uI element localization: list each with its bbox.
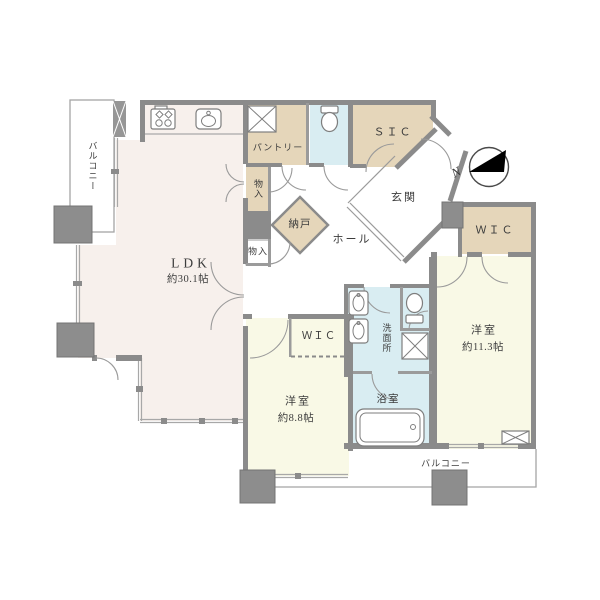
second-toilet-icon	[406, 294, 423, 324]
label-bathroom: 浴室	[377, 395, 400, 406]
gas-stove-icon	[151, 106, 175, 129]
label-wic-right: ＷＩＣ	[476, 226, 515, 237]
label-sic: ＳＩＣ	[374, 128, 413, 139]
label-nando: 納戸	[289, 220, 312, 231]
label-ldk-area: 約30.1帖	[167, 275, 209, 286]
label-bedroom-right: 洋室	[471, 326, 497, 337]
label-wic-left: ＷＩＣ	[302, 332, 337, 343]
label-genkan: 玄関	[391, 193, 417, 204]
washbasin-icon	[349, 291, 368, 315]
floorplan-canvas: バルコニー LDK 約30.1帖 パントリー 物入 納戸 物入 ホール 玄関 Ｓ…	[0, 0, 600, 600]
vent-icon	[502, 431, 529, 444]
label-pantry: パントリー	[253, 144, 303, 153]
bathtub-icon	[356, 409, 424, 446]
label-bedroom-left-area: 約8.8帖	[278, 414, 315, 425]
label-ldk: LDK	[171, 256, 211, 270]
second-washbasin-icon	[349, 319, 368, 343]
north-compass-icon	[469, 148, 509, 187]
label-bedroom-left: 洋室	[285, 397, 311, 408]
floorplan-drawing	[0, 0, 600, 600]
label-hall: ホール	[333, 235, 372, 246]
label-storage-lower: 物入	[248, 248, 268, 257]
kitchen-sink-icon	[196, 109, 221, 129]
label-balcony-left: バルコニー	[88, 141, 97, 191]
pantry-shelf-icon	[248, 106, 276, 132]
toilet-icon	[321, 106, 338, 132]
label-balcony-bottom: バルコニー	[421, 460, 471, 469]
washer-pan-icon	[402, 333, 428, 359]
hatched-sleeve-wall	[113, 101, 126, 137]
label-storage-upper: 物入	[253, 179, 262, 199]
label-washroom: 洗面所	[382, 323, 391, 353]
label-bedroom-right-area: 約11.3帖	[462, 343, 504, 354]
